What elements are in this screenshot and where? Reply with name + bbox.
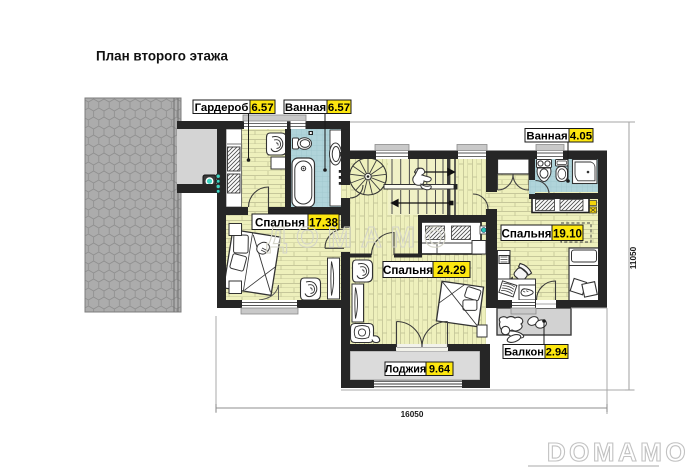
svg-text:6.57: 6.57 — [251, 102, 273, 114]
svg-text:6.57: 6.57 — [328, 102, 350, 114]
svg-text:Спальня: Спальня — [501, 227, 551, 240]
svg-text:Ванная: Ванная — [285, 102, 326, 114]
svg-text:Ванная: Ванная — [526, 130, 567, 142]
svg-text:19.10: 19.10 — [553, 227, 582, 240]
svg-text:24.29: 24.29 — [437, 264, 467, 277]
svg-text:Лоджия: Лоджия — [385, 364, 426, 376]
svg-text:4.05: 4.05 — [570, 130, 593, 142]
svg-text:9.64: 9.64 — [429, 364, 450, 376]
svg-text:Спальня: Спальня — [383, 264, 433, 277]
svg-text:2.94: 2.94 — [546, 346, 568, 358]
svg-text:Гардероб: Гардероб — [195, 102, 249, 114]
svg-text:DOMAMO: DOMAMO — [547, 437, 689, 467]
svg-text:План второго этажа: План второго этажа — [96, 49, 229, 64]
svg-text:11050: 11050 — [629, 246, 638, 269]
svg-text:ДОМАМО: ДОМАМО — [266, 222, 455, 254]
svg-text:16050: 16050 — [401, 410, 424, 419]
svg-text:Балкон: Балкон — [504, 346, 544, 358]
